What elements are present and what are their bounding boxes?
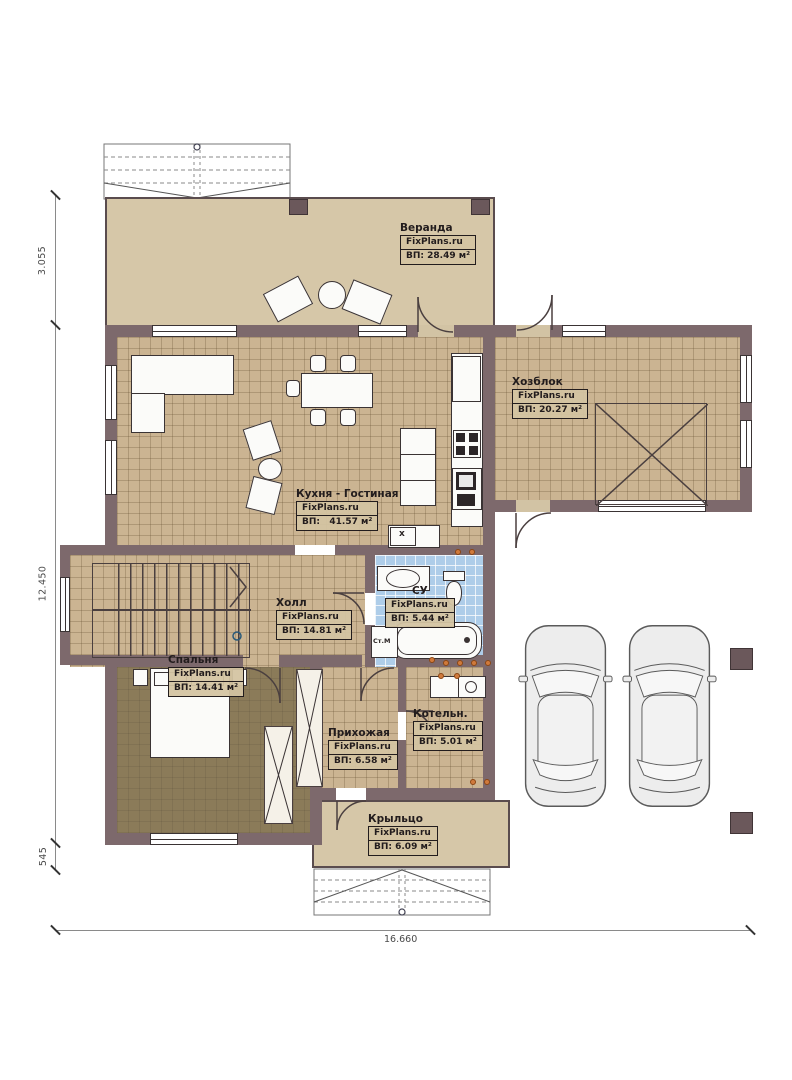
car [622, 620, 717, 812]
coffee-table [318, 281, 346, 309]
left-dimension-line [55, 195, 56, 870]
dining-chair [310, 409, 326, 426]
brand-watermark: FixPlans.ru [369, 827, 437, 840]
stove [453, 430, 481, 458]
washing-machine-label: Ст.М [373, 637, 390, 645]
veranda-post [289, 199, 308, 215]
brand-watermark: FixPlans.ru [277, 611, 351, 624]
hozblok-bottom-door[interactable] [515, 512, 553, 550]
fridge [452, 356, 481, 402]
brand-watermark: FixPlans.ru [329, 741, 397, 754]
wardrobe[interactable] [296, 669, 323, 787]
floor-plan: 3.055 12.450 545 16.660 [0, 0, 792, 1080]
wardrobe[interactable] [264, 726, 293, 824]
fence-pillar [730, 812, 753, 834]
sofa [131, 355, 234, 395]
vent-box-label: x [399, 529, 405, 539]
veranda-post [471, 199, 490, 215]
nightstand [133, 669, 148, 686]
car [518, 620, 613, 812]
brand-watermark: FixPlans.ru [513, 390, 587, 403]
room-label-kitchen-living: Кухня - Гостиная FixPlans.ruВП: 41.57 м² [296, 488, 399, 531]
kitchen-island [400, 428, 436, 506]
fence-pillar [730, 648, 753, 670]
room-label-bedroom: Спальня FixPlans.ruВП: 14.41 м² [168, 654, 244, 697]
dining-chair [340, 409, 356, 426]
front-door[interactable] [336, 800, 368, 832]
entry-door[interactable] [360, 667, 396, 703]
brand-watermark: FixPlans.ru [414, 722, 482, 735]
brand-watermark: FixPlans.ru [386, 599, 454, 612]
room-label-boiler: Котельн. FixPlans.ruВП: 5.01 м² [413, 708, 483, 751]
veranda-door[interactable] [417, 295, 455, 333]
dim-veranda-depth: 3.055 [37, 246, 48, 275]
veranda-roof [103, 143, 291, 200]
room-label-hozblok: Хозблок FixPlans.ruВП: 20.27 м² [512, 376, 588, 419]
dining-table [301, 373, 373, 408]
room-label-hall: Холл FixPlans.ruВП: 14.81 м² [276, 597, 352, 640]
dining-chair [286, 380, 300, 397]
room-label-entry: Прихожая FixPlans.ruВП: 6.58 м² [328, 727, 398, 770]
toilet-tank[interactable] [443, 571, 465, 581]
bedroom-door[interactable] [243, 667, 281, 705]
room-label-bathroom: СУ FixPlans.ruВП: 5.44 м² [385, 585, 455, 628]
staircase[interactable] [92, 563, 250, 658]
brand-watermark: FixPlans.ru [297, 502, 377, 515]
brand-watermark: FixPlans.ru [401, 236, 475, 249]
brand-watermark: FixPlans.ru [169, 668, 243, 681]
room-label-porch: Крыльцо FixPlans.ruВП: 6.09 м² [368, 813, 438, 856]
dining-chair [340, 355, 356, 372]
side-table [258, 458, 282, 480]
dim-total-width: 16.660 [384, 934, 417, 945]
sofa-chaise [131, 393, 165, 433]
kitchen-sink [452, 468, 482, 510]
dim-porch-step: 545 [38, 847, 49, 866]
dim-house-depth: 12.450 [37, 566, 48, 602]
storage-platform [595, 403, 707, 505]
bottom-dimension-line [55, 930, 750, 931]
porch-roof [313, 868, 491, 916]
dining-chair [310, 355, 326, 372]
hozblok-top-door[interactable] [515, 293, 553, 331]
room-label-veranda: Веранда FixPlans.ruВП: 28.49 м² [400, 222, 476, 265]
